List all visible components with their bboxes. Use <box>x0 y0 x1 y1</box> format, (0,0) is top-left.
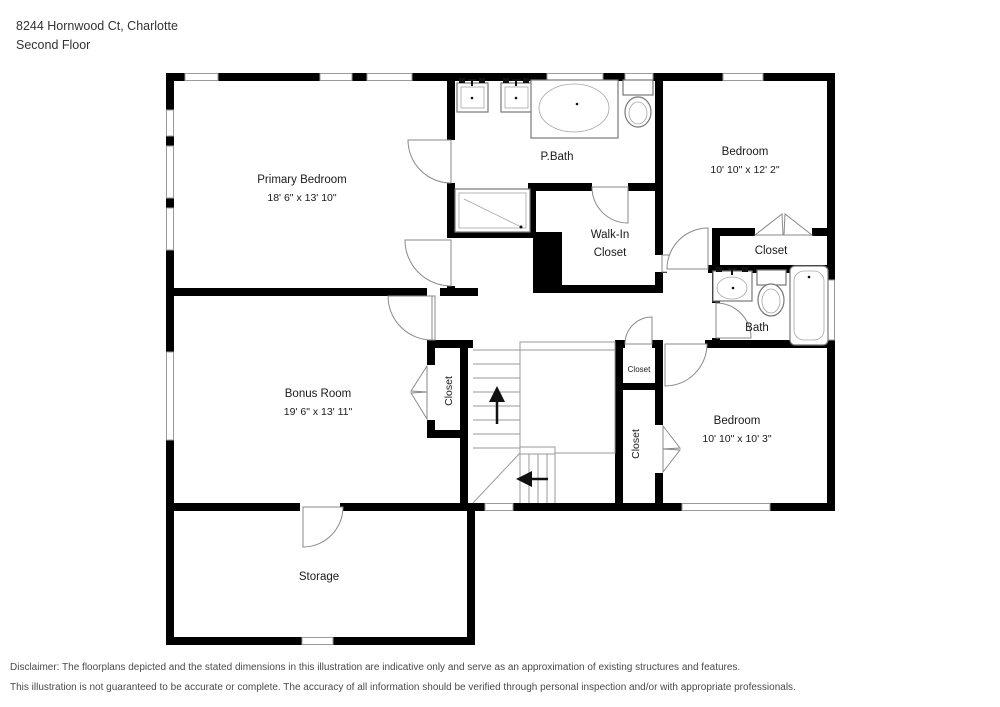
window <box>367 74 412 81</box>
bedroom-bottom-right-label: Bedroom <box>714 415 761 427</box>
bath-sink-segment <box>716 267 722 272</box>
walls-segment <box>655 272 663 293</box>
disclaimer-line2: This illustration is not guaranteed to b… <box>10 682 796 693</box>
floorplan-page: 8244 Hornwood Ct, Charlotte Second Floor <box>0 0 1000 707</box>
door-hall-closet-tall-bifold <box>655 425 680 473</box>
window <box>167 208 174 250</box>
walls-segment <box>166 288 427 296</box>
door-bonus-room-segment <box>427 288 440 296</box>
bath-tub <box>790 266 828 345</box>
window <box>167 146 174 198</box>
door-closet-top-right-bifold-segment <box>784 214 812 235</box>
stair-void <box>520 342 615 453</box>
door-primary-entry-segment <box>405 240 451 286</box>
pbath-vanity-sink-2-segment <box>503 78 509 83</box>
bath-sink-segment <box>742 267 748 272</box>
closet-top-right-label: Closet <box>755 245 788 257</box>
bedroom-top-right-dims: 10' 10" x 12' 2" <box>710 164 780 176</box>
disclaimer: Disclaimer: The floorplans depicted and … <box>10 662 796 693</box>
staircase <box>473 342 615 503</box>
door-hall-closet-tall-bifold-segment <box>663 449 680 472</box>
bedroom-bottom-right-dims: 10' 10" x 10' 3" <box>702 433 772 445</box>
walls-segment <box>460 340 468 511</box>
walls-segment <box>615 340 625 348</box>
window <box>167 110 174 136</box>
door-bedroom-top-right-segment <box>667 228 708 269</box>
address-title: 8244 Hornwood Ct, Charlotte <box>16 19 178 33</box>
pbath-tub-segment <box>576 103 579 106</box>
bath-label: Bath <box>745 322 769 334</box>
bonus-closet-label: Closet <box>443 376 455 406</box>
walls-segment <box>427 340 435 365</box>
pbath-tub-segment <box>531 80 618 138</box>
window <box>485 504 513 511</box>
walls-segment <box>615 383 663 390</box>
window <box>302 638 333 645</box>
pbath-vanity-sink-2-segment <box>515 97 518 100</box>
walls-segment <box>712 228 755 236</box>
door-hall-closet-small-segment <box>625 317 652 344</box>
windows <box>167 74 835 645</box>
fixtures <box>455 78 828 345</box>
pbath-vanity-sink-1-segment <box>471 79 473 86</box>
storage-label: Storage <box>299 571 339 583</box>
stair-rail <box>520 447 555 454</box>
door-walkin-closet <box>592 183 628 223</box>
bedroom-top-right-label: Bedroom <box>722 146 769 158</box>
window <box>320 74 352 81</box>
door-hall-closet-tall-bifold-segment <box>663 426 680 449</box>
walls-segment <box>440 288 478 296</box>
door-hall-closet-small <box>625 317 652 348</box>
primary-bedroom-label: Primary Bedroom <box>257 174 346 186</box>
door-hall-closet-tall-bifold-segment <box>655 425 663 473</box>
bath-sink-segment <box>731 268 733 275</box>
stairs-left-arrow <box>516 471 548 487</box>
primary-bedroom-dims: 18' 6" x 13' 10" <box>267 192 337 204</box>
door-storage <box>300 503 343 547</box>
walkin-closet-label-line2: Closet <box>594 247 627 259</box>
door-closet-top-right-bifold-segment <box>755 214 783 235</box>
floor-subtitle: Second Floor <box>16 38 90 52</box>
stairs-up-arrow-segment <box>489 386 505 402</box>
door-closet-top-right-bifold <box>755 214 812 236</box>
door-primary-entry <box>405 238 455 286</box>
door-bonus-closet-bifold <box>411 365 435 420</box>
stairs-left-arrow-segment <box>516 471 532 487</box>
door-bedroom-bottom-right-segment <box>665 344 707 386</box>
pbath-vanity-sink-2 <box>501 78 532 112</box>
window <box>185 74 218 81</box>
walls-segment <box>652 340 663 348</box>
pbath-vanity-sink-1-segment <box>479 78 485 83</box>
door-bonus-room-segment <box>388 296 432 340</box>
pbath-vanity-sink-2-segment <box>523 78 529 83</box>
walls-segment <box>467 511 475 645</box>
walls-segment <box>812 228 835 236</box>
bath-tub-segment <box>808 276 811 279</box>
walls <box>166 73 835 645</box>
door-bonus-closet-bifold-segment <box>411 366 427 392</box>
walkin-closet-label-line1: Walk-In <box>591 229 630 241</box>
pbath-vanity-sink-1-segment <box>459 78 465 83</box>
chase-shaft <box>533 232 562 293</box>
window <box>167 352 174 440</box>
bath-toilet <box>757 270 786 316</box>
pbath-vanity-sink-1 <box>457 78 488 112</box>
pbath-toilet <box>623 80 653 127</box>
walls-segment <box>655 473 663 511</box>
hall-closet-small-label: Closet <box>628 365 651 374</box>
walls-segment <box>528 183 592 191</box>
bath-toilet-segment <box>757 270 786 285</box>
plan-header: 8244 Hornwood Ct, Charlotte Second Floor <box>16 19 178 52</box>
window <box>682 504 770 511</box>
bonus-room-label: Bonus Room <box>285 388 351 400</box>
bath-sink-segment <box>732 287 735 290</box>
door-bedroom-top-right <box>667 228 708 273</box>
door-storage-segment <box>303 507 343 547</box>
bath-sink <box>713 267 752 301</box>
stair-diagonal <box>473 453 520 503</box>
pbath-vanity-sink-1-segment <box>471 97 474 100</box>
pbath-tub <box>531 80 618 138</box>
pbath-vanity-sink-2-segment <box>515 79 517 86</box>
bonus-room-dims: 19' 6" x 13' 11" <box>284 406 353 418</box>
door-pbath <box>408 140 455 183</box>
walls-segment <box>615 342 623 511</box>
window <box>723 74 763 81</box>
disclaimer-line1: Disclaimer: The floorplans depicted and … <box>10 662 740 673</box>
door-bonus-closet-bifold-segment <box>411 392 427 419</box>
walls-segment <box>562 285 663 293</box>
pbath-shower-segment <box>520 226 523 229</box>
pbath-label: P.Bath <box>540 151 573 163</box>
door-pbath-segment <box>408 140 451 183</box>
walls-segment <box>655 73 663 255</box>
pbath-toilet-segment <box>623 80 653 95</box>
door-bonus-closet-bifold-segment <box>427 365 435 420</box>
pbath-shower <box>455 189 530 232</box>
floorplan-canvas: 8244 Hornwood Ct, Charlotte Second Floor <box>0 0 1000 707</box>
door-bonus-room <box>388 288 440 340</box>
door-bedroom-bottom-right <box>663 340 707 386</box>
bath-sink-segment <box>713 271 752 301</box>
hall-closet-tall-label: Closet <box>630 429 642 459</box>
door-walkin-closet-segment <box>592 187 628 223</box>
